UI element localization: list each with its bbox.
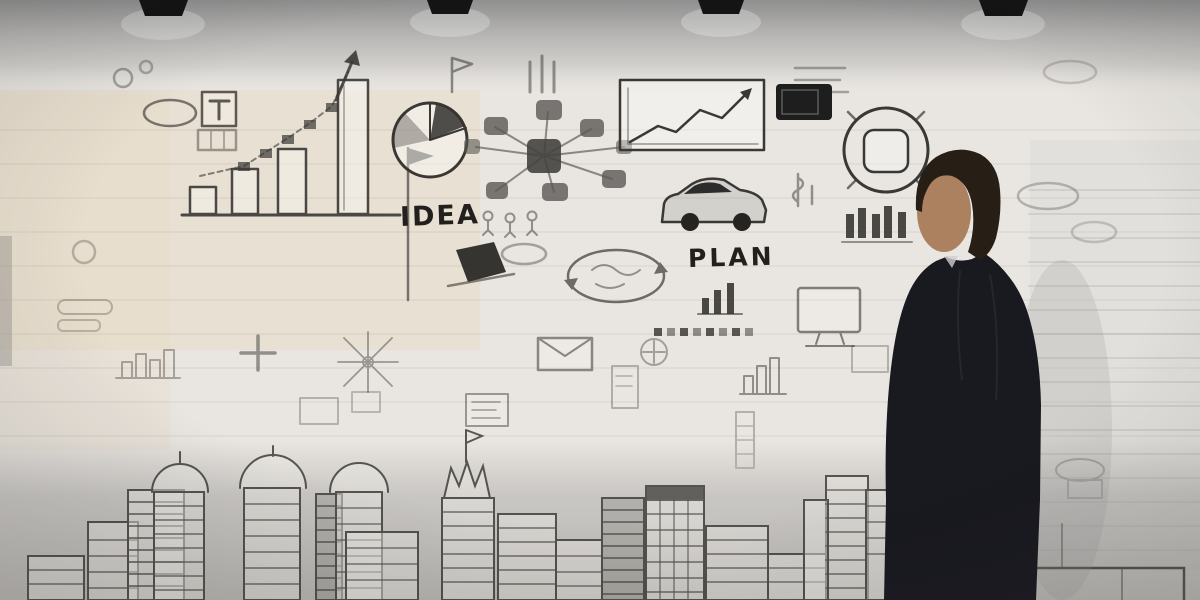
vignette-overlay (0, 0, 1200, 600)
photo-businessman-sketch-wall: IDEA (0, 0, 1200, 600)
photo-canvas: IDEA (0, 0, 1200, 600)
